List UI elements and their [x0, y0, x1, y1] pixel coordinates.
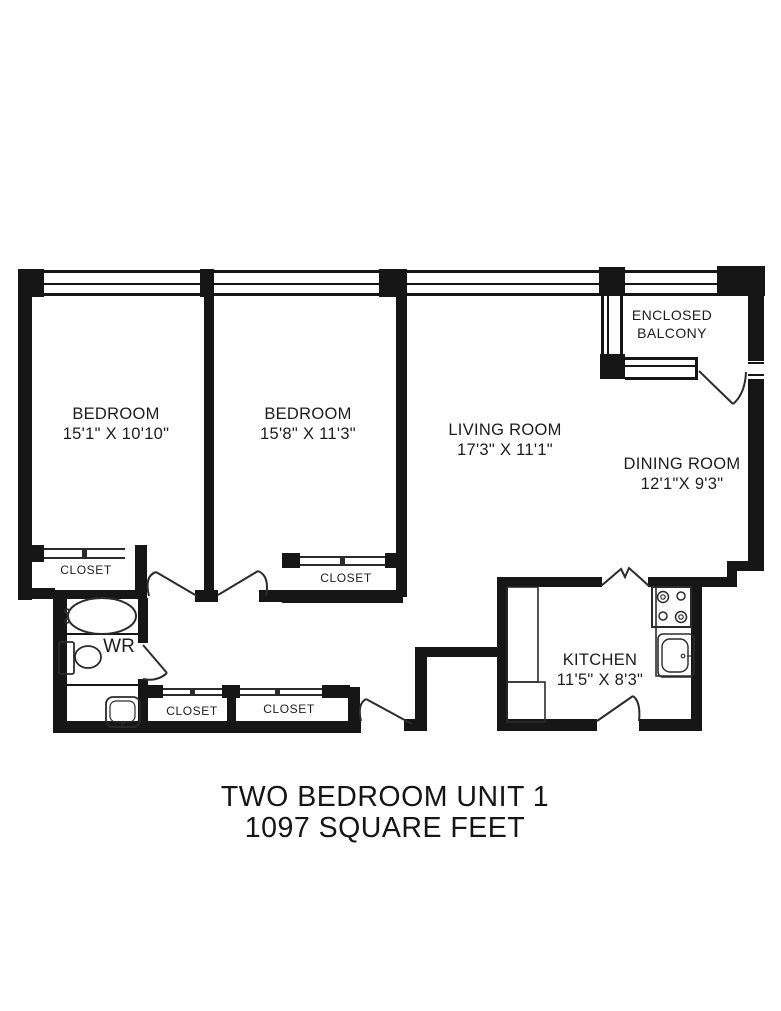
bedroom1-door: [148, 572, 197, 596]
top-window-wall: [18, 266, 765, 297]
floor-plan: BEDROOM 15'1" X 10'10" BEDROOM 15'8" X 1…: [0, 0, 781, 1011]
burner: [676, 612, 687, 623]
living-room-name: LIVING ROOM: [415, 420, 595, 440]
closet-label-hall-right: CLOSET: [251, 702, 327, 716]
entry-door: [360, 699, 412, 724]
living-room-dimensions: 17'3" X 11'1": [415, 440, 595, 460]
entry-nook-wall-h: [415, 647, 502, 657]
plan-title-line1: TWO BEDROOM UNIT 1: [150, 782, 620, 813]
closet-label-hall-left: CLOSET: [154, 704, 230, 718]
burner: [679, 615, 683, 619]
wall-pier: [599, 267, 625, 296]
bathtub: [65, 598, 136, 634]
wall-pier: [200, 269, 214, 297]
plan-title-line2: 1097 SQUARE FEET: [150, 813, 620, 844]
bedroom2-label: BEDROOM 15'8" X 11'3": [218, 404, 398, 444]
bedroom2-living-wall: [396, 295, 407, 597]
dining-room-label: DINING ROOM 12'1"X 9'3": [592, 454, 772, 494]
kitchen-label: KITCHEN 11'5" X 8'3": [512, 650, 688, 690]
south-wall-left: [53, 721, 361, 733]
wall-pier: [379, 269, 407, 297]
balcony-label: ENCLOSED BALCONY: [622, 306, 722, 342]
floor-plan-drawing: [0, 0, 781, 1011]
kitchen-south-wall-left: [497, 719, 597, 731]
balcony-name-line2: BALCONY: [622, 324, 722, 342]
stove: [652, 587, 691, 627]
dining-room-name: DINING ROOM: [592, 454, 772, 474]
balcony-name-line1: ENCLOSED: [622, 306, 722, 324]
bedroom-divider-wall: [204, 295, 214, 602]
balcony-door: [699, 371, 746, 404]
bedroom1-label: BEDROOM 15'1" X 10'10": [26, 404, 206, 444]
burner: [659, 612, 667, 620]
kitchen-name: KITCHEN: [512, 650, 688, 670]
burner: [661, 595, 665, 599]
bedroom1-name: BEDROOM: [26, 404, 206, 424]
burner: [658, 592, 669, 603]
kitchen-north-wall-left: [497, 577, 602, 587]
burner: [677, 592, 685, 600]
bedroom2-name: BEDROOM: [218, 404, 398, 424]
kitchen-service-door: [597, 696, 639, 721]
wr-door: [143, 645, 167, 680]
closet-label-bedroom1: CLOSET: [48, 563, 124, 577]
bedroom2-dimensions: 15'8" X 11'3": [218, 424, 398, 444]
kitchen-dimensions: 11'5" X 8'3": [512, 670, 688, 690]
wr-west-wall: [53, 592, 67, 733]
wall-pier: [600, 354, 625, 379]
entry-nook-wall-v: [415, 647, 427, 729]
plan-title: TWO BEDROOM UNIT 1 1097 SQUARE FEET: [150, 782, 620, 844]
bedroom1-dimensions: 15'1" X 10'10": [26, 424, 206, 444]
living-room-label: LIVING ROOM 17'3" X 11'1": [415, 420, 595, 460]
dining-room-dimensions: 12'1"X 9'3": [592, 474, 772, 494]
kitchen-pass-opening: [601, 568, 649, 586]
kitchen-north-wall-right: [648, 577, 737, 587]
washroom-label: WR: [97, 637, 141, 657]
kitchen-east-wall: [691, 579, 702, 731]
east-wall-upper: [748, 267, 764, 361]
closet-label-bedroom2: CLOSET: [308, 571, 384, 585]
